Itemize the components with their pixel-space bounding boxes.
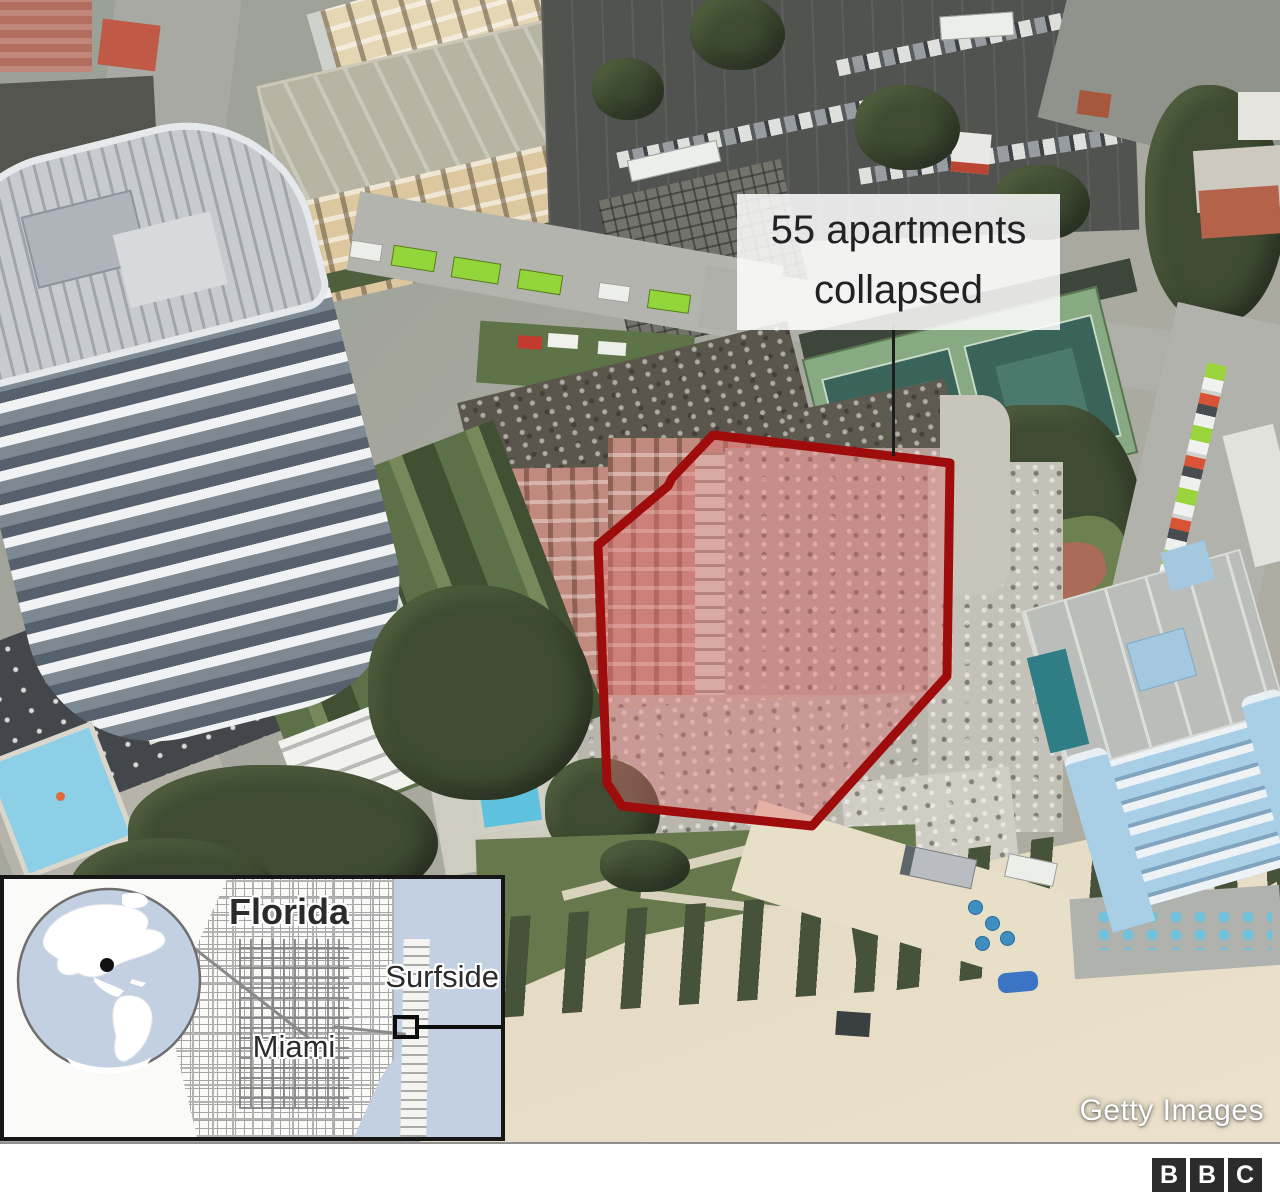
globe-icon — [14, 885, 204, 1075]
news-graphic: 55 apartments collapsed Getty Images — [0, 0, 1280, 1204]
photo-credit: Getty Images — [1080, 1094, 1264, 1128]
globe-location-dot — [100, 958, 114, 972]
callout-line-2: collapsed — [737, 260, 1060, 320]
footer-bar: B B C — [0, 1142, 1280, 1204]
map-label-miami: Miami — [194, 1029, 394, 1065]
bbc-logo-block-1: B — [1152, 1158, 1186, 1192]
collapse-highlight-outline — [598, 435, 950, 826]
map-marker-square — [393, 1015, 419, 1039]
inset-locator-map: Florida Surfside Miami — [0, 875, 505, 1141]
bbc-logo-block-2: B — [1190, 1158, 1224, 1192]
map-marker-line — [417, 1025, 501, 1029]
bbc-logo: B B C — [1152, 1158, 1262, 1192]
callout-line-1: 55 apartments — [737, 200, 1060, 260]
map-label-florida: Florida — [189, 891, 389, 933]
callout-pointer-line — [892, 324, 895, 456]
bbc-logo-block-3: C — [1228, 1158, 1262, 1192]
map-label-surfside: Surfside — [299, 959, 499, 995]
callout-label: 55 apartments collapsed — [737, 194, 1060, 330]
aerial-photo: 55 apartments collapsed Getty Images — [0, 0, 1280, 1142]
